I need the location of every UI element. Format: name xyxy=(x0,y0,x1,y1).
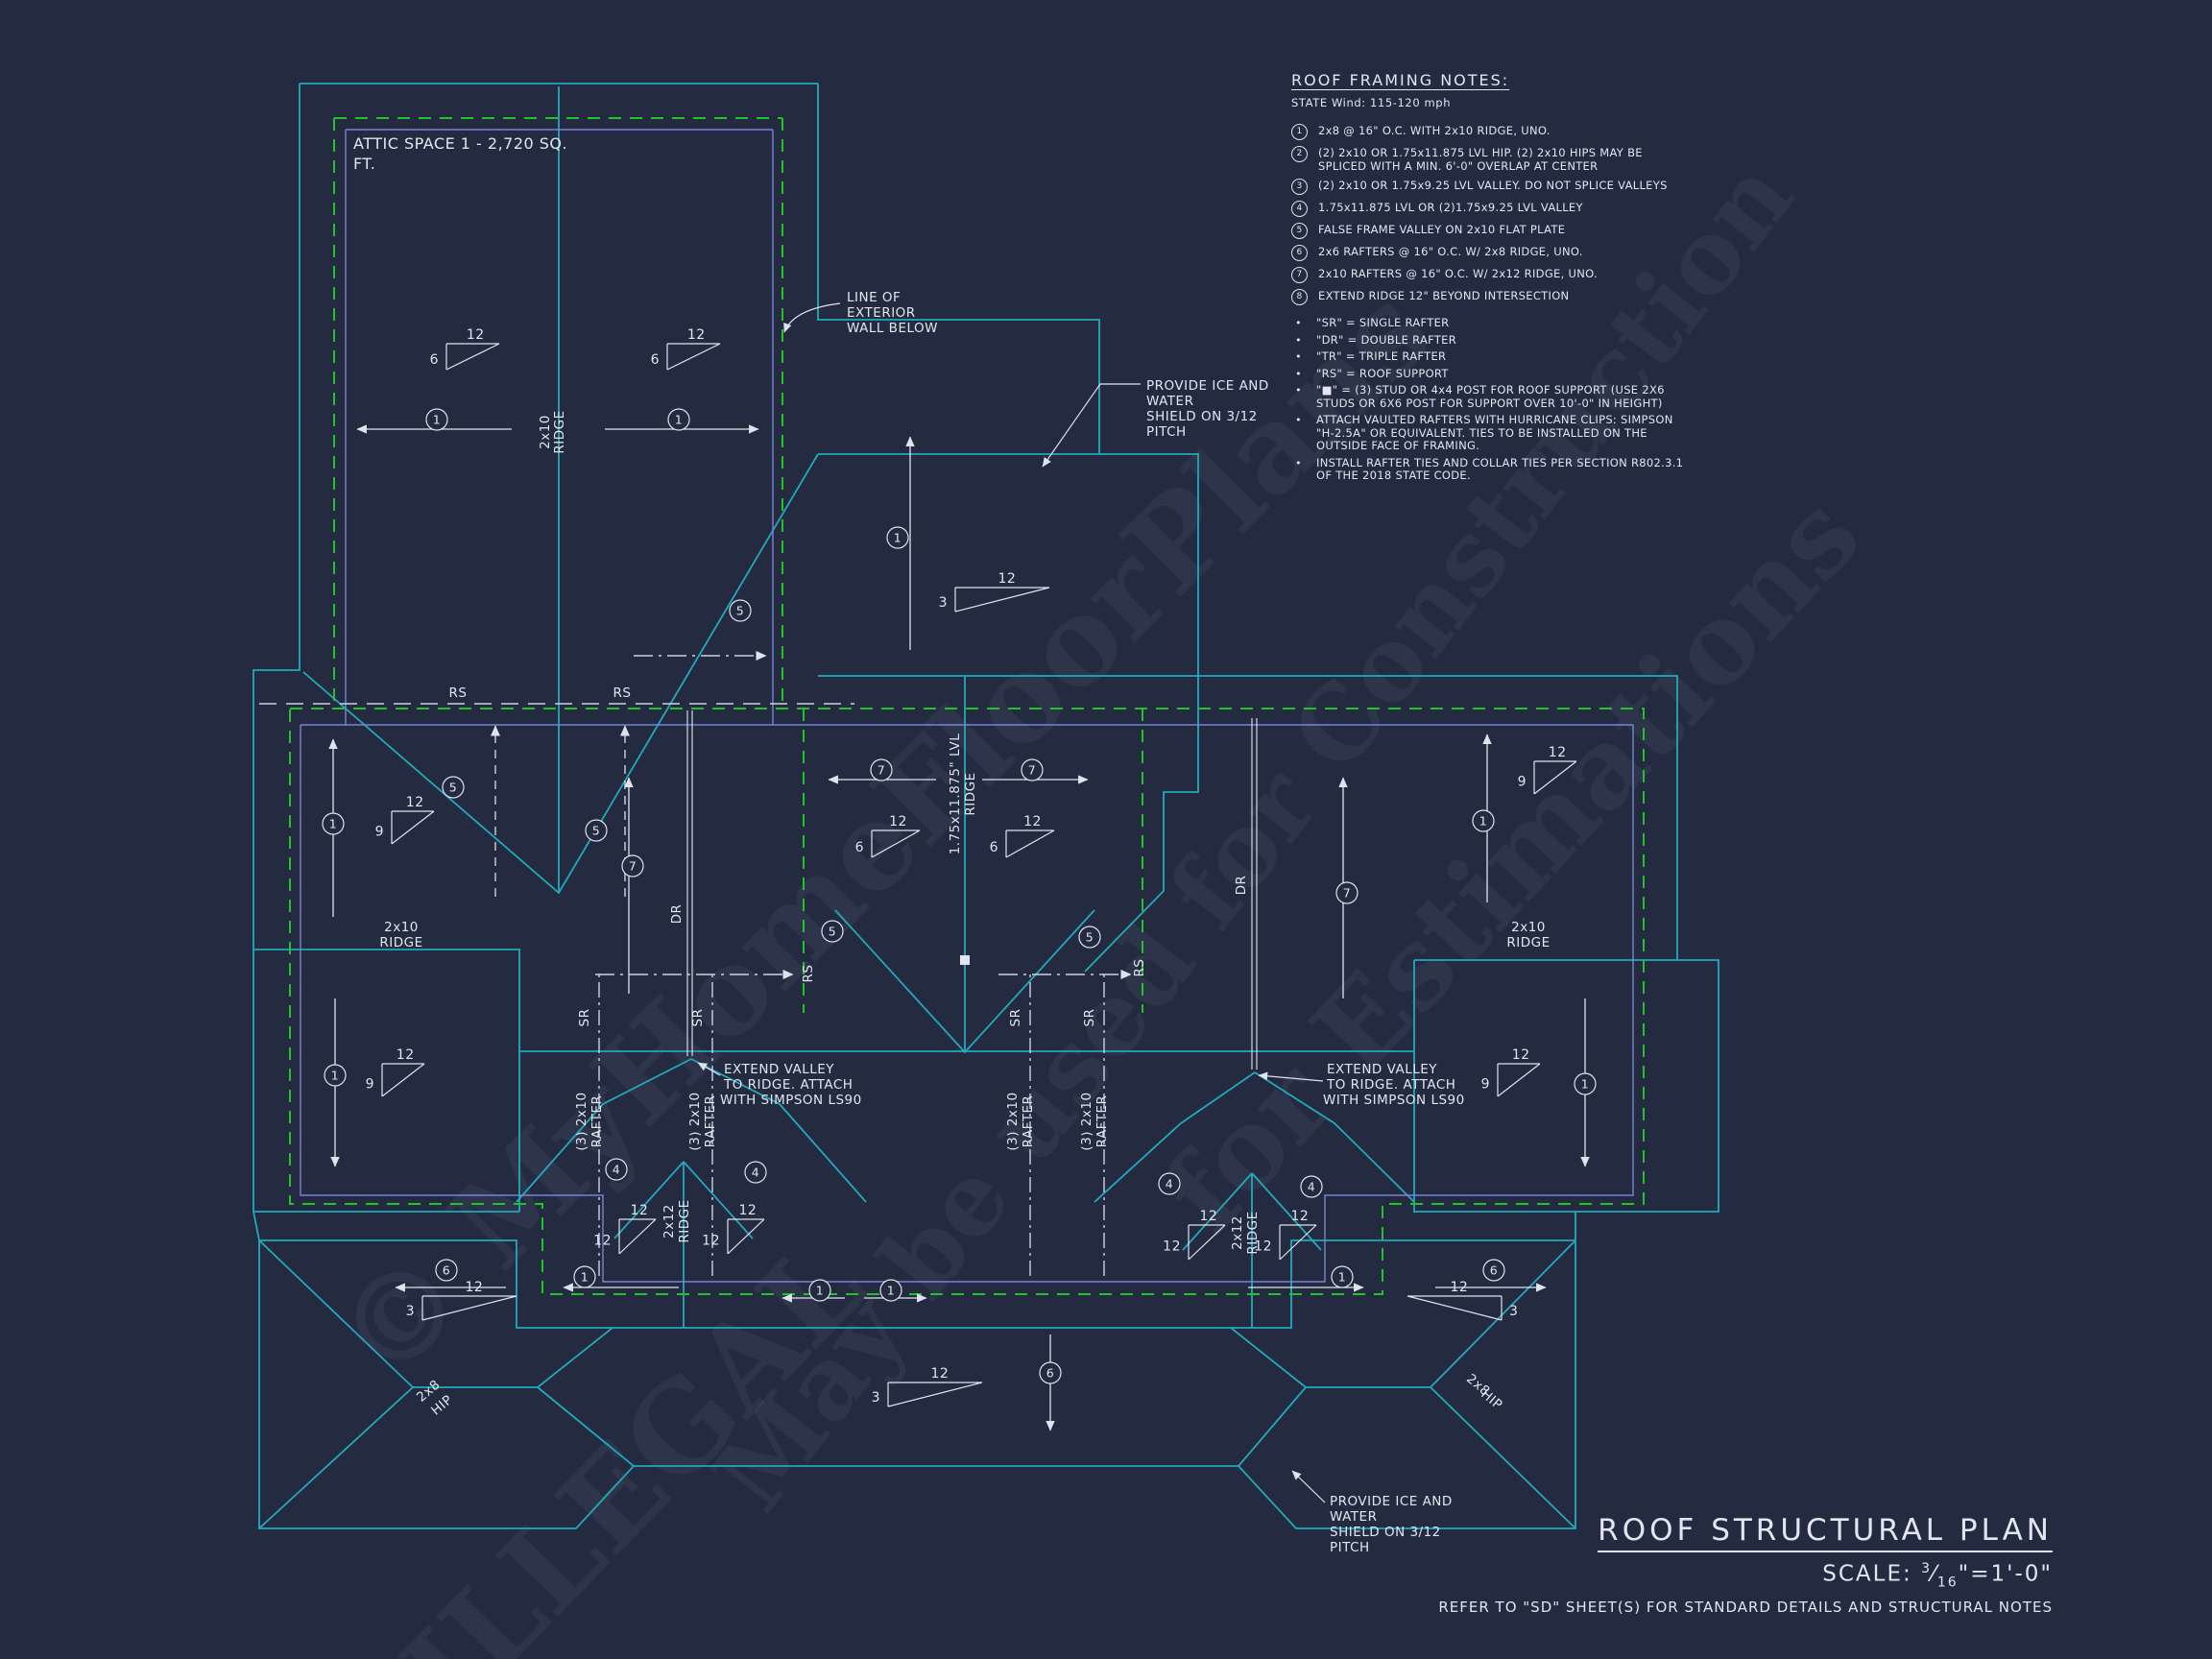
bullet-dot: • xyxy=(1291,317,1306,330)
note-markers: 111111111114444555556667777 xyxy=(323,409,1596,1383)
plan-label: SR xyxy=(577,1009,592,1027)
bullet-dot: • xyxy=(1291,350,1306,364)
plan-label: ATTIC SPACE 1 - 2,720 SQ. xyxy=(353,134,567,153)
slope-indicator: 123 xyxy=(872,1366,982,1407)
attic-ridge-and-valleys xyxy=(303,86,818,893)
note-marker-number: 5 xyxy=(829,925,836,939)
note-marker-number: 1 xyxy=(433,413,441,427)
slope-triangle xyxy=(728,1219,764,1254)
slope-run-label: 12 xyxy=(1549,745,1567,760)
note-marker-number: 1 xyxy=(329,817,337,831)
plan-label: RS xyxy=(1132,959,1147,977)
notes-numbered-item: 12x8 @ 16" O.C. WITH 2x10 RIDGE, UNO. xyxy=(1291,125,1695,140)
slope-rise-label: 9 xyxy=(1518,774,1527,789)
note-marker: 5 xyxy=(822,921,843,942)
note-text: (2) 2x10 OR 1.75x11.875 LVL HIP. (2) 2x1… xyxy=(1318,147,1695,173)
note-marker: 5 xyxy=(443,777,464,798)
note-marker-number: 1 xyxy=(816,1284,824,1298)
note-marker-number: 6 xyxy=(1046,1366,1054,1381)
bottom-silhouette xyxy=(253,1212,1575,1528)
note-marker: 1 xyxy=(1332,1266,1353,1287)
notes-title: ROOF FRAMING NOTES: xyxy=(1291,71,1695,89)
slope-rise-label: 12 xyxy=(702,1234,720,1249)
slope-triangle xyxy=(888,1382,982,1407)
note-marker-number: 6 xyxy=(1490,1263,1498,1278)
note-marker: 4 xyxy=(1159,1173,1180,1194)
slope-triangle xyxy=(1006,830,1054,857)
scale-rest: "=1'-0" xyxy=(1959,1562,2053,1587)
note-marker: 1 xyxy=(809,1280,830,1301)
valley-lines xyxy=(517,1059,1414,1202)
note-marker: 1 xyxy=(887,527,908,548)
plan-label: RIDGE xyxy=(1506,935,1550,950)
scale-label: SCALE: xyxy=(1822,1562,1912,1587)
plan-label: TO RIDGE. ATTACH xyxy=(1326,1077,1455,1093)
sheet-reference-note: REFER TO "SD" SHEET(S) FOR STANDARD DETA… xyxy=(901,1599,2053,1616)
slope-indicator: 129 xyxy=(375,795,434,844)
slope-indicator: 123 xyxy=(939,571,1049,612)
plan-label: RAFTER xyxy=(703,1095,718,1148)
note-marker-number: 1 xyxy=(887,1284,895,1298)
wing-hips-ridges xyxy=(259,1240,1575,1528)
slope-triangle xyxy=(392,811,434,844)
slope-triangle xyxy=(1280,1225,1316,1260)
plan-label: RAFTER xyxy=(1021,1095,1036,1148)
slope-indicator: 126 xyxy=(430,327,499,370)
note-marker-number: 4 xyxy=(752,1166,759,1180)
note-text: "TR" = TRIPLE RAFTER xyxy=(1316,350,1446,364)
bullet-dot: • xyxy=(1291,334,1306,348)
notes-numbered-item: 72x10 RAFTERS @ 16" O.C. W/ 2x12 RIDGE, … xyxy=(1291,268,1695,283)
slope-indicator: 126 xyxy=(651,327,720,370)
plan-label: RIDGE xyxy=(379,935,422,950)
slope-rise-label: 3 xyxy=(1509,1304,1518,1319)
notes-bullet-item: •"DR" = DOUBLE RAFTER xyxy=(1291,334,1695,348)
plan-label: EXTERIOR xyxy=(847,305,916,321)
note-marker: 6 xyxy=(1483,1260,1504,1281)
plan-label: RS xyxy=(449,685,468,701)
plan-label: LINE OF xyxy=(847,290,901,305)
slope-run-label: 12 xyxy=(467,327,485,343)
plan-label: RS xyxy=(613,685,632,701)
slope-rise-label: 9 xyxy=(366,1076,374,1092)
plan-label: WATER xyxy=(1146,394,1193,409)
plan-label: TO RIDGE. ATTACH xyxy=(723,1077,853,1093)
note-marker-number: 5 xyxy=(736,604,744,618)
bullet-dot: • xyxy=(1291,457,1306,483)
dr-double-rafter-lines xyxy=(687,710,1257,1070)
plan-label: WITH SIMPSON LS90 xyxy=(1323,1093,1465,1108)
slope-indicator: 126 xyxy=(855,814,920,857)
slope-indicator: 129 xyxy=(366,1047,424,1096)
dr-line xyxy=(1252,718,1257,1070)
bullet-dot: • xyxy=(1291,368,1306,381)
plan-label: FT. xyxy=(353,155,375,173)
roof-framing-notes: ROOF FRAMING NOTES: STATE Wind: 115-120 … xyxy=(1291,71,1695,487)
note-marker-number: 1 xyxy=(894,531,902,545)
slope-indicator: 126 xyxy=(990,814,1054,857)
plan-label: RS xyxy=(801,965,816,983)
note-marker: 1 xyxy=(880,1280,902,1301)
note-marker: 4 xyxy=(1301,1176,1322,1197)
notes-numbered-item: 62x6 RAFTERS @ 16" O.C. W/ 2x8 RIDGE, UN… xyxy=(1291,246,1695,261)
slope-triangle xyxy=(1189,1225,1225,1260)
leader-exterior-wall xyxy=(784,303,840,332)
notes-bullet-item: •"SR" = SINGLE RAFTER xyxy=(1291,317,1695,330)
slope-triangle xyxy=(1498,1064,1540,1096)
plan-label: RAFTER xyxy=(1094,1095,1110,1148)
note-marker-number: 7 xyxy=(878,763,885,778)
post-square-symbol xyxy=(960,955,970,965)
plan-label: WALL BELOW xyxy=(847,321,938,336)
note-marker: 5 xyxy=(586,820,607,841)
note-marker: 1 xyxy=(668,409,689,430)
title-block: ROOF STRUCTURAL PLAN SCALE: 3⁄16"=1'-0" … xyxy=(901,1513,2053,1616)
slope-rise-label: 6 xyxy=(855,840,864,855)
note-number-circle: 3 xyxy=(1291,179,1308,195)
note-text: 2x8 @ 16" O.C. WITH 2x10 RIDGE, UNO. xyxy=(1318,125,1551,140)
slope-indicator: 1212 xyxy=(1163,1209,1225,1260)
note-marker-number: 1 xyxy=(331,1069,339,1083)
note-marker: 7 xyxy=(1022,759,1043,781)
slope-run-label: 12 xyxy=(738,1203,757,1218)
note-marker: 1 xyxy=(574,1266,595,1287)
plan-label: DR xyxy=(1234,876,1249,896)
note-marker-number: 1 xyxy=(581,1270,589,1285)
slope-run-label: 12 xyxy=(998,571,1016,587)
slope-indicator: 123 xyxy=(1407,1280,1518,1320)
notes-numbered-list: 12x8 @ 16" O.C. WITH 2x10 RIDGE, UNO.2(2… xyxy=(1291,125,1695,305)
note-marker: 7 xyxy=(622,855,643,877)
note-text: INSTALL RAFTER TIES AND COLLAR TIES PER … xyxy=(1316,457,1695,483)
note-marker-number: 4 xyxy=(613,1163,620,1177)
plan-label: RIDGE xyxy=(677,1199,692,1242)
note-number-circle: 7 xyxy=(1291,267,1308,283)
note-marker-number: 5 xyxy=(1086,930,1094,945)
notes-numbered-item: 8EXTEND RIDGE 12" BEYOND INTERSECTION xyxy=(1291,290,1695,305)
note-text: FALSE FRAME VALLEY ON 2x10 FLAT PLATE xyxy=(1318,224,1565,239)
slope-run-label: 12 xyxy=(687,327,706,343)
slope-run-label: 12 xyxy=(630,1203,648,1218)
center-gable xyxy=(835,676,1094,1052)
plan-label: 2x12 xyxy=(1230,1215,1245,1250)
note-marker-number: 5 xyxy=(592,824,600,838)
note-text: (2) 2x10 OR 1.75x9.25 LVL VALLEY. DO NOT… xyxy=(1318,180,1668,195)
plan-label: SHIELD ON 3/12 xyxy=(1146,409,1258,424)
note-number-circle: 5 xyxy=(1291,223,1308,239)
slope-run-label: 12 xyxy=(1512,1047,1530,1063)
note-marker: 7 xyxy=(1336,882,1358,903)
plan-label: RIDGE xyxy=(963,772,978,815)
plan-label: EXTEND VALLEY xyxy=(724,1062,834,1077)
note-text: EXTEND RIDGE 12" BEYOND INTERSECTION xyxy=(1318,290,1569,305)
note-marker-number: 1 xyxy=(1338,1270,1346,1285)
plan-label: RIDGE xyxy=(552,410,567,453)
notes-subtitle: STATE Wind: 115-120 mph xyxy=(1291,96,1695,109)
note-number-circle: 4 xyxy=(1291,201,1308,217)
note-marker-number: 4 xyxy=(1166,1177,1173,1191)
notes-numbered-item: 3(2) 2x10 OR 1.75x9.25 LVL VALLEY. DO NO… xyxy=(1291,180,1695,195)
note-number-circle: 8 xyxy=(1291,289,1308,305)
plan-label: RAFTER xyxy=(589,1095,605,1148)
slope-rise-label: 6 xyxy=(430,352,439,368)
plan-label: PROVIDE ICE AND xyxy=(1330,1494,1453,1509)
slope-rise-label: 6 xyxy=(990,840,998,855)
bullet-dot: • xyxy=(1291,384,1306,410)
slope-rise-label: 9 xyxy=(1481,1076,1490,1092)
notes-bullet-item: •INSTALL RAFTER TIES AND COLLAR TIES PER… xyxy=(1291,457,1695,483)
plan-label: 2x10 xyxy=(1511,920,1546,935)
notes-bullet-item: •"RS" = ROOF SUPPORT xyxy=(1291,368,1695,381)
note-marker-number: 6 xyxy=(443,1263,450,1278)
note-number-circle: 6 xyxy=(1291,245,1308,261)
note-marker: 5 xyxy=(1079,926,1100,948)
plan-label: RIDGE xyxy=(1245,1211,1261,1254)
note-marker: 1 xyxy=(325,1065,346,1086)
plan-label: WITH SIMPSON LS90 xyxy=(720,1093,862,1108)
slope-rise-label: 12 xyxy=(593,1234,612,1249)
notes-bullet-list: •"SR" = SINGLE RAFTER•"DR" = DOUBLE RAFT… xyxy=(1291,317,1695,483)
notes-numbered-item: 5FALSE FRAME VALLEY ON 2x10 FLAT PLATE xyxy=(1291,224,1695,239)
slope-indicators: 1261261231291291261261291291212121212121… xyxy=(366,327,1576,1407)
notes-numbered-item: 41.75x11.875 LVL OR (2)1.75x9.25 LVL VAL… xyxy=(1291,202,1695,217)
slope-run-label: 12 xyxy=(930,1366,949,1382)
slope-indicator: 1212 xyxy=(1254,1209,1316,1260)
slope-rise-label: 12 xyxy=(1163,1239,1181,1255)
note-text: ATTACH VAULTED RAFTERS WITH HURRICANE CL… xyxy=(1316,414,1695,453)
slope-triangle xyxy=(667,344,720,370)
bullet-dot: • xyxy=(1291,414,1306,453)
note-text: 2x10 RAFTERS @ 16" O.C. W/ 2x12 RIDGE, U… xyxy=(1318,268,1598,283)
note-marker: 1 xyxy=(323,813,344,834)
note-marker: 1 xyxy=(426,409,447,430)
plan-label: (3) 2x10 xyxy=(1005,1092,1021,1150)
note-number-circle: 1 xyxy=(1291,124,1308,140)
plan-label: SR xyxy=(1008,1009,1023,1027)
sheet-scale: SCALE: 3⁄16"=1'-0" xyxy=(901,1561,2053,1590)
slope-indicator: 1212 xyxy=(702,1203,764,1254)
note-text: "SR" = SINGLE RAFTER xyxy=(1316,317,1449,330)
slope-indicator: 129 xyxy=(1481,1047,1540,1096)
note-marker-number: 7 xyxy=(1343,886,1351,901)
notes-bullet-item: •"TR" = TRIPLE RAFTER xyxy=(1291,350,1695,364)
note-marker: 6 xyxy=(436,1260,457,1281)
scale-numerator: 3 xyxy=(1921,1561,1932,1576)
plan-label: 2x10 xyxy=(538,415,553,449)
leader-ice-water-bottom xyxy=(1292,1471,1325,1503)
slope-run-label: 12 xyxy=(1450,1280,1468,1295)
note-marker-number: 1 xyxy=(675,413,683,427)
plan-label: (3) 2x10 xyxy=(574,1092,589,1150)
slope-indicator: 123 xyxy=(406,1280,517,1320)
note-marker-number: 7 xyxy=(629,859,637,874)
note-marker-number: 4 xyxy=(1308,1180,1315,1194)
note-marker: 6 xyxy=(1040,1362,1061,1383)
note-text: "■" = (3) STUD OR 4x4 POST FOR ROOF SUPP… xyxy=(1316,384,1695,410)
plan-label: PROVIDE ICE AND xyxy=(1146,378,1269,394)
slope-rise-label: 3 xyxy=(406,1304,415,1319)
plan-label: (3) 2x10 xyxy=(1079,1092,1094,1150)
sheet-title: ROOF STRUCTURAL PLAN xyxy=(1598,1513,2053,1552)
note-number-circle: 2 xyxy=(1291,146,1308,162)
leader-extend-valley-left xyxy=(698,1063,720,1075)
slope-rise-label: 3 xyxy=(939,595,948,611)
slope-triangle xyxy=(955,588,1049,612)
plan-label: 2x10 xyxy=(384,920,419,935)
notes-bullet-item: •"■" = (3) STUD OR 4x4 POST FOR ROOF SUP… xyxy=(1291,384,1695,410)
slope-run-label: 12 xyxy=(465,1280,483,1295)
porch-gable-ridges xyxy=(614,1162,1321,1328)
slope-run-label: 12 xyxy=(1290,1209,1309,1224)
note-marker-number: 5 xyxy=(449,781,457,795)
plan-label: 2x12 xyxy=(661,1204,677,1238)
slope-run-label: 12 xyxy=(397,1047,415,1063)
plan-label: 1.75x11.875" LVL xyxy=(948,733,963,855)
note-marker-number: 1 xyxy=(1479,814,1487,829)
scale-denominator: 16 xyxy=(1937,1575,1959,1590)
cad-sheet: © MyHomeFloorPlansILLEGALMay be used for… xyxy=(0,0,2212,1659)
notes-bullet-item: •ATTACH VAULTED RAFTERS WITH HURRICANE C… xyxy=(1291,414,1695,453)
note-marker: 4 xyxy=(745,1162,766,1183)
plan-label: (3) 2x10 xyxy=(687,1092,703,1150)
slope-run-label: 12 xyxy=(406,795,424,810)
note-text: "RS" = ROOF SUPPORT xyxy=(1316,368,1449,381)
slope-triangle xyxy=(619,1219,656,1254)
roof-support-post xyxy=(960,955,970,965)
notes-numbered-item: 2(2) 2x10 OR 1.75x11.875 LVL HIP. (2) 2x… xyxy=(1291,147,1695,173)
rs-reference-lines xyxy=(259,656,1131,1277)
note-marker: 5 xyxy=(730,600,751,621)
plan-label: SR xyxy=(1082,1009,1097,1027)
side-ridge-boxes xyxy=(253,950,1719,1212)
note-marker: 4 xyxy=(606,1159,627,1180)
slope-triangle xyxy=(872,830,920,857)
annotation-leaders xyxy=(698,303,1325,1503)
dr-line xyxy=(687,710,692,1056)
note-text: "DR" = DOUBLE RAFTER xyxy=(1316,334,1456,348)
slope-triangle xyxy=(1407,1296,1502,1320)
note-marker: 7 xyxy=(871,759,892,781)
note-marker-number: 7 xyxy=(1028,763,1036,778)
slope-run-label: 12 xyxy=(1023,814,1042,829)
slope-rise-label: 9 xyxy=(375,824,384,839)
roof-plan-svg: 1261261231291291261261291291212121212121… xyxy=(0,0,2212,1659)
slope-run-label: 12 xyxy=(889,814,907,829)
slope-run-label: 12 xyxy=(1199,1209,1217,1224)
note-text: 2x6 RAFTERS @ 16" O.C. W/ 2x8 RIDGE, UNO… xyxy=(1318,246,1583,261)
slope-rise-label: 3 xyxy=(872,1390,880,1406)
slope-direction-arrows xyxy=(333,429,1585,1431)
note-text: 1.75x11.875 LVL OR (2)1.75x9.25 LVL VALL… xyxy=(1318,202,1583,217)
slope-triangle xyxy=(382,1064,424,1096)
slope-triangle xyxy=(446,344,499,370)
note-marker: 1 xyxy=(1575,1073,1596,1094)
slope-triangle xyxy=(1534,761,1576,794)
plan-label: SR xyxy=(690,1009,706,1027)
note-marker-number: 1 xyxy=(1581,1077,1589,1092)
slope-triangle xyxy=(422,1296,517,1320)
note-marker: 1 xyxy=(1473,810,1494,831)
slope-rise-label: 6 xyxy=(651,352,660,368)
slope-indicator: 129 xyxy=(1518,745,1576,794)
plan-label: PITCH xyxy=(1146,424,1187,440)
plan-label: EXTEND VALLEY xyxy=(1327,1062,1437,1077)
plan-label: DR xyxy=(669,904,685,925)
